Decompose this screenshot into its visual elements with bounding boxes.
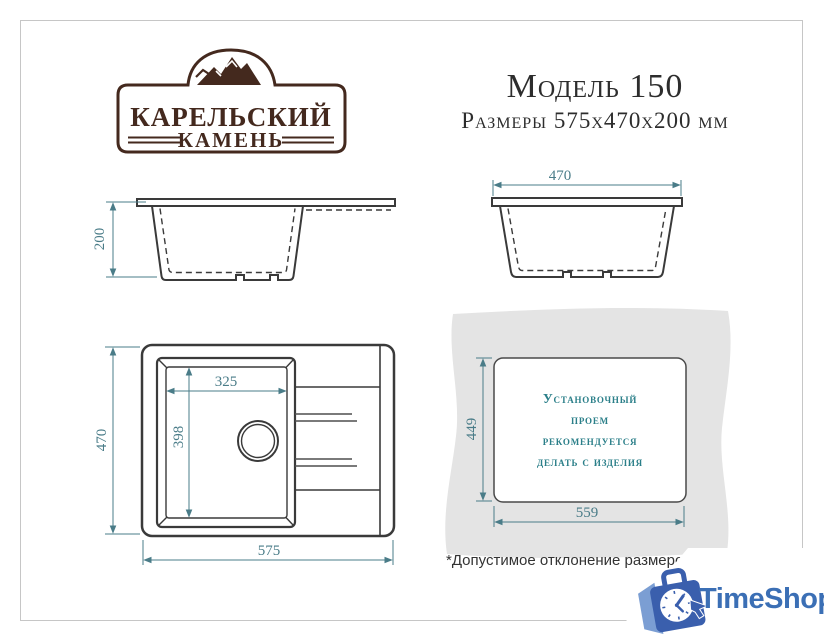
front-view-drawing [137, 199, 395, 280]
note-line: делать с изделия [500, 451, 680, 472]
dim-label-575: 575 [249, 543, 289, 559]
front-view-height-dimension [106, 202, 157, 277]
drainboard-ridges [295, 414, 357, 466]
top-view-dimensions [105, 347, 393, 565]
drain-hole-inner-icon [242, 425, 275, 458]
drainboard-panel [295, 387, 380, 490]
dim-label-470-side: 470 [540, 168, 580, 184]
dim-label-449: 449 [464, 409, 480, 449]
dim-label-398: 398 [171, 417, 187, 457]
dim-label-200: 200 [92, 219, 108, 259]
installation-note: Установочный проем рекомендуется делать … [500, 388, 680, 472]
watermark-wordmark: TimeShop [699, 583, 824, 616]
dim-label-559: 559 [567, 505, 607, 521]
note-line: проем [500, 409, 680, 430]
drain-hole-icon [238, 421, 278, 461]
note-line: рекомендуется [500, 430, 680, 451]
dim-label-325: 325 [206, 374, 246, 390]
dim-label-470-top: 470 [94, 420, 110, 460]
page: КАРЕЛЬСКИЙ КАМЕНЬ Модель 150 Размеры 575… [0, 0, 824, 640]
note-line: Установочный [500, 388, 680, 409]
side-view-drawing [492, 198, 682, 277]
side-view-width-dimension [493, 180, 681, 196]
